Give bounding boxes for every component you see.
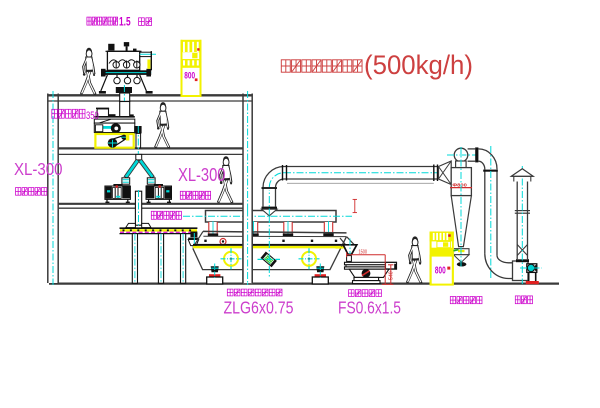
svg-text:800: 800: [184, 70, 195, 80]
svg-text:800: 800: [435, 265, 446, 276]
svg-text:FS0.6x1.5: FS0.6x1.5: [338, 298, 401, 318]
svg-text:1.5: 1.5: [119, 15, 131, 29]
svg-text:XL-300: XL-300: [14, 159, 63, 179]
svg-text:XL-300: XL-300: [178, 164, 226, 185]
svg-text:1500: 1500: [359, 249, 368, 255]
svg-text:350: 350: [86, 110, 99, 122]
svg-text:540: 540: [389, 271, 395, 280]
svg-text:(500kg/h): (500kg/h): [364, 50, 473, 80]
svg-text:ZLG6x0.75: ZLG6x0.75: [224, 298, 294, 318]
